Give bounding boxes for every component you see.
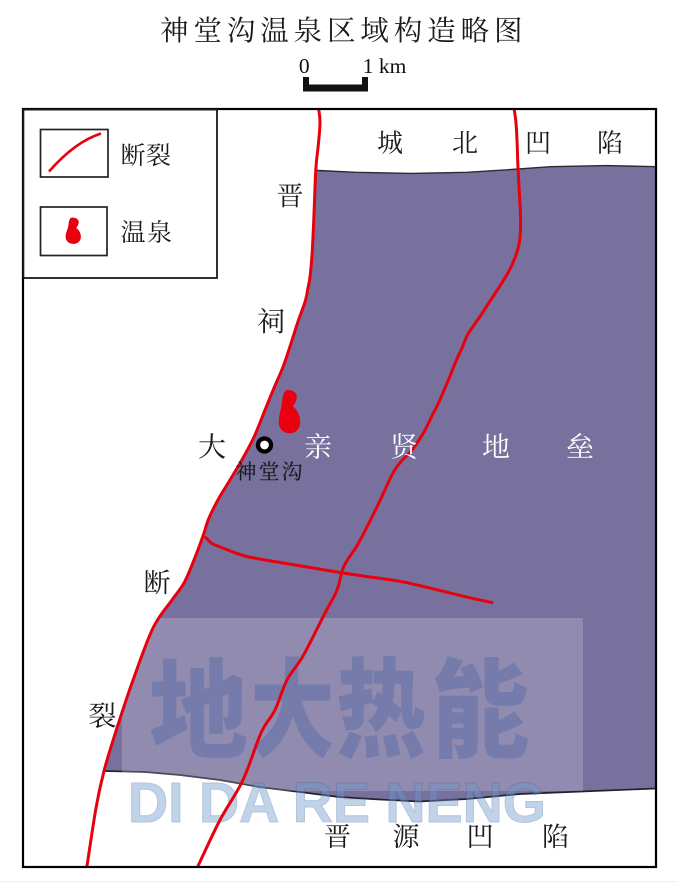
svg-text:0: 0	[299, 54, 310, 78]
svg-text:1 km: 1 km	[363, 54, 407, 78]
